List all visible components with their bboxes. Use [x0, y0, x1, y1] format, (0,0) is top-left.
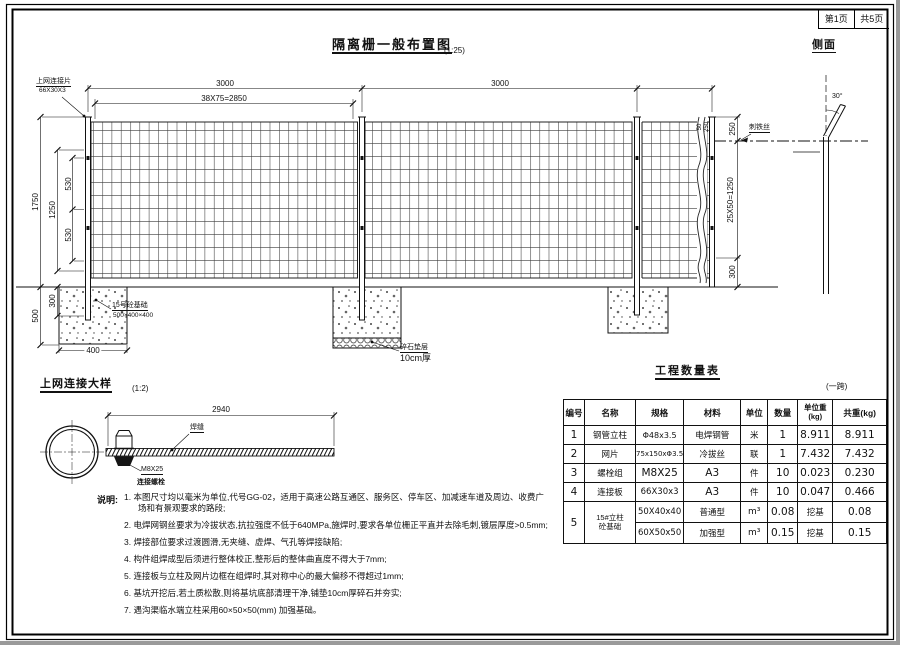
- cushion-label: 碎石垫层: [400, 344, 428, 353]
- note-item: 7. 遇沟渠临水端立柱采用60×50×50(mm) 加强基础。: [124, 605, 549, 616]
- cell: 0.230: [833, 464, 887, 483]
- connection-piece-label: 上网连接片: [36, 78, 71, 87]
- col-header-unit-weight: 单位重 (kg): [798, 400, 833, 426]
- dim-embed-depth: 300: [49, 294, 57, 307]
- cell: 66X30x3: [636, 483, 684, 502]
- cell: 钢管立柱: [585, 426, 636, 445]
- cell: 0.466: [833, 483, 887, 502]
- table-row: 3 螺栓组 M8X25 A3 件 10 0.023 0.230: [564, 464, 887, 483]
- cushion-spec: 10cm厚: [400, 354, 431, 363]
- table-header-row: 编号 名称 规格 材料 单位 数量 单位重 (kg) 共重(kg): [564, 400, 887, 426]
- cell: 连接板: [585, 483, 636, 502]
- elevation-scale: (1:25): [444, 47, 465, 55]
- dim-right-bottom: 300: [729, 265, 737, 278]
- quantity-table-note: (一跨): [826, 383, 847, 391]
- cell: 0.08: [833, 502, 887, 523]
- break-line: [697, 117, 707, 283]
- cell: 挖基: [798, 502, 833, 523]
- bolt-spec-label: M8X25: [141, 466, 163, 475]
- cell: 7.432: [833, 445, 887, 464]
- cell: m³: [741, 523, 768, 544]
- cell: 15#立柱 砼基础: [585, 502, 636, 544]
- connection-piece-spec: 66X30X3: [39, 88, 66, 95]
- cell: 1: [768, 445, 798, 464]
- dim-footing-depth: 500: [32, 309, 40, 322]
- row5-name-line2: 砼基础: [585, 523, 635, 532]
- dim-span-left: 3000: [216, 80, 234, 88]
- col-header: 数量: [768, 400, 798, 426]
- dim-right-mesh: 25X50=1250: [727, 177, 735, 223]
- notes-block: 说明: 1. 本图尺寸均以毫米为单位,代号GG-02，适用于高速公路互通区、服务…: [97, 492, 549, 622]
- scan-edge-bottom: [0, 641, 900, 645]
- col-header: 材料: [684, 400, 741, 426]
- page-current: 第1页: [819, 9, 855, 28]
- cell: 60X50x50: [636, 523, 684, 544]
- cell: m³: [741, 502, 768, 523]
- detail-drawing: [40, 420, 334, 486]
- table-row: 5 15#立柱 砼基础 50X40x40 普通型 m³ 0.08 挖基 0.08: [564, 502, 887, 523]
- cell: 0.15: [768, 523, 798, 544]
- dim-footing-width: 400: [84, 347, 101, 355]
- quantity-table: 编号 名称 规格 材料 单位 数量 单位重 (kg) 共重(kg) 1 钢管立柱…: [563, 399, 887, 544]
- angle-label: 30°: [832, 93, 843, 100]
- col-header: 规格: [636, 400, 684, 426]
- table-row: 2 网片 75x150xΦ3.5 冷拔丝 联 1 7.432 7.432: [564, 445, 887, 464]
- cell: 7.432: [798, 445, 833, 464]
- detail-scale: (1:2): [132, 385, 148, 393]
- cell: 0.047: [798, 483, 833, 502]
- dim-mesh-upper: 530: [65, 177, 73, 190]
- cell: 螺栓组: [585, 464, 636, 483]
- footing-label: 15号砼基础: [112, 302, 148, 311]
- col-header: 名称: [585, 400, 636, 426]
- dim-detail-length: 2940: [212, 406, 230, 414]
- side-view-title: 侧面: [812, 40, 836, 53]
- col-header: 单位: [741, 400, 768, 426]
- cell: 0.15: [833, 523, 887, 544]
- note-item: 3. 焊接部位要求过渡圆滑,无夹缝、虚焊、气孔等焊接缺陷;: [124, 537, 549, 548]
- page-total: 共5页: [855, 9, 890, 28]
- note-item: 2. 电焊网钢丝要求为冷拔状态,抗拉强度不低于640MPa,施焊时,要求各单位栅…: [124, 520, 549, 531]
- cell: 件: [741, 483, 768, 502]
- cell: 8.911: [798, 426, 833, 445]
- weld-label: 焊缝: [190, 424, 204, 433]
- cell: 1: [768, 426, 798, 445]
- elevation-title: 隔离栅一般布置图: [332, 38, 452, 54]
- dim-mesh-pitch: 38X75=2850: [201, 95, 247, 103]
- side-view-post: [793, 75, 846, 294]
- notes-label: 说明:: [97, 493, 118, 506]
- detail-title: 上网连接大样: [40, 379, 112, 393]
- cell: 0.023: [798, 464, 833, 483]
- note-item: 1. 本图尺寸均以毫米为单位,代号GG-02，适用于高速公路互通区、服务区、停车…: [124, 492, 549, 514]
- cell: A3: [684, 464, 741, 483]
- cell: Φ48x3.5: [636, 426, 684, 445]
- barbed-wire-label: 刺铁丝: [749, 124, 770, 133]
- cell: 挖基: [798, 523, 833, 544]
- cell: M8X25: [636, 464, 684, 483]
- footing-spec: 500×400×400: [113, 313, 153, 320]
- cell: 50X40x40: [636, 502, 684, 523]
- dim-mesh-lower: 530: [65, 228, 73, 241]
- dim-right-small-a: 50: [697, 124, 703, 131]
- cell: 2: [564, 445, 585, 464]
- dim-mesh-height: 1250: [49, 201, 57, 219]
- drawing-sheet: { "sheet": { "page_label": "第1页", "pages…: [0, 0, 900, 645]
- cell: 1: [564, 426, 585, 445]
- dim-span-right: 3000: [491, 80, 509, 88]
- col-header: 编号: [564, 400, 585, 426]
- cell: 网片: [585, 445, 636, 464]
- dim-right-small-b: 250: [704, 122, 710, 132]
- cell: A3: [684, 483, 741, 502]
- dim-post-height: 1750: [32, 193, 40, 211]
- table-row: 4 连接板 66X30x3 A3 件 10 0.047 0.466: [564, 483, 887, 502]
- cell: 8.911: [833, 426, 887, 445]
- cell: 普通型: [684, 502, 741, 523]
- note-item: 6. 基坑开挖后,若土质松散,则将基坑底部清理干净,铺垫10cm厚碎石并夯实;: [124, 588, 549, 599]
- cell: 加强型: [684, 523, 741, 544]
- cell: 75x150xΦ3.5: [636, 445, 684, 464]
- cell: 5: [564, 502, 585, 544]
- bolt-name-label: 连接螺栓: [137, 479, 165, 486]
- cell: 冷拔丝: [684, 445, 741, 464]
- page-number-box: 第1页 共5页: [818, 9, 889, 29]
- cell: 3: [564, 464, 585, 483]
- quantity-table-title: 工程数量表: [655, 366, 720, 380]
- col-header-total-weight: 共重(kg): [833, 400, 887, 426]
- cell: 10: [768, 483, 798, 502]
- cell: 电焊钢管: [684, 426, 741, 445]
- scan-edge-right: [896, 0, 900, 645]
- cell: 4: [564, 483, 585, 502]
- unit-weight-line2: (kg): [798, 413, 832, 421]
- note-item: 4. 构件组焊成型后须进行整体校正,整形后的整体曲直度不得大于7mm;: [124, 554, 549, 565]
- cell: 0.08: [768, 502, 798, 523]
- note-item: 5. 连接板与立柱及网片边框在组焊时,其对称中心的最大偏移不得超过1mm;: [124, 571, 549, 582]
- mesh-panels: [91, 122, 709, 278]
- cell: 10: [768, 464, 798, 483]
- table-row: 1 钢管立柱 Φ48x3.5 电焊钢管 米 1 8.911 8.911: [564, 426, 887, 445]
- cell: 联: [741, 445, 768, 464]
- cell: 件: [741, 464, 768, 483]
- dim-right-top: 250: [729, 122, 737, 135]
- cell: 米: [741, 426, 768, 445]
